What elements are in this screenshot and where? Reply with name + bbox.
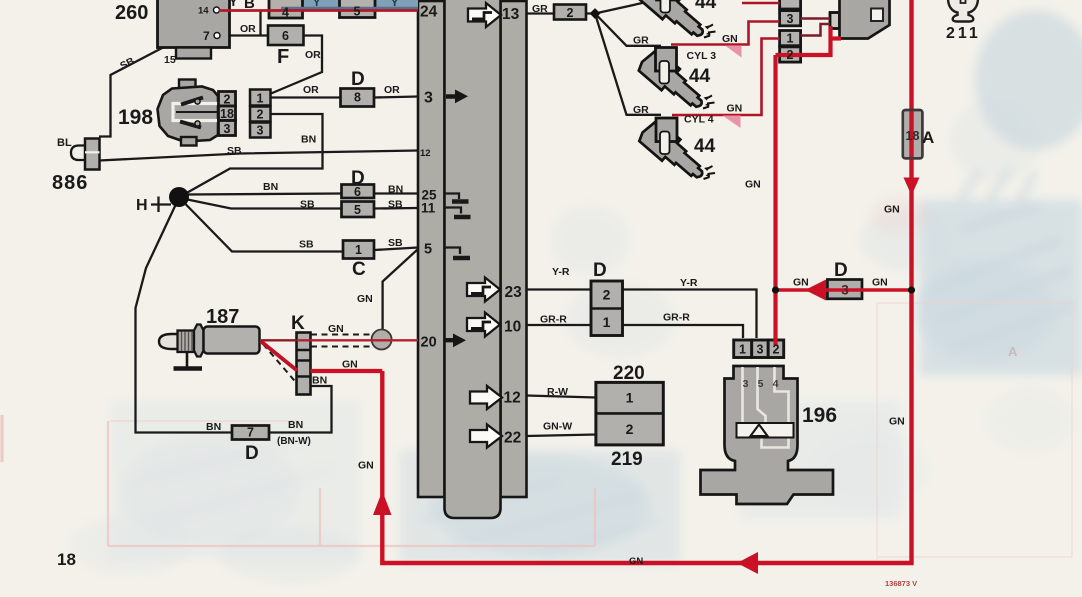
svg-text:6: 6 xyxy=(282,29,289,43)
svg-text:GN: GN xyxy=(745,179,761,191)
svg-text:(BN-W): (BN-W) xyxy=(277,436,311,447)
svg-text:6: 6 xyxy=(354,185,361,199)
svg-text:OR: OR xyxy=(305,49,321,61)
svg-text:Y: Y xyxy=(313,0,321,9)
svg-text:2: 2 xyxy=(773,343,780,357)
svg-text:3: 3 xyxy=(787,12,794,26)
svg-text:7: 7 xyxy=(247,426,254,440)
svg-text:5: 5 xyxy=(354,5,361,19)
svg-text:2: 2 xyxy=(603,287,611,303)
svg-text:GR-R: GR-R xyxy=(663,312,690,324)
svg-text:219: 219 xyxy=(611,449,643,470)
svg-text:15: 15 xyxy=(164,54,176,66)
svg-text:GR-R: GR-R xyxy=(540,314,567,326)
svg-text:18: 18 xyxy=(906,129,920,143)
svg-text:2: 2 xyxy=(257,108,264,122)
svg-text:8: 8 xyxy=(354,91,361,105)
svg-text:3: 3 xyxy=(757,343,764,357)
svg-text:GR: GR xyxy=(633,104,649,116)
svg-text:GN: GN xyxy=(357,293,373,305)
svg-text:1: 1 xyxy=(355,243,362,257)
svg-text:GN: GN xyxy=(793,277,809,289)
svg-text:1: 1 xyxy=(626,390,634,406)
svg-text:D: D xyxy=(593,260,607,281)
svg-text:886: 886 xyxy=(52,172,88,194)
svg-text:F: F xyxy=(277,46,289,68)
svg-text:GN: GN xyxy=(884,204,900,216)
svg-text:3: 3 xyxy=(257,124,264,138)
svg-text:OR: OR xyxy=(240,23,256,35)
svg-text:R-W: R-W xyxy=(547,386,568,398)
svg-text:2: 2 xyxy=(224,93,231,107)
svg-text:GR: GR xyxy=(633,35,649,47)
svg-text:BN: BN xyxy=(301,134,316,146)
svg-text:10: 10 xyxy=(504,319,521,336)
svg-text:C: C xyxy=(352,259,366,280)
svg-text:H: H xyxy=(136,197,148,214)
svg-text:Y: Y xyxy=(229,0,238,9)
svg-text:211: 211 xyxy=(946,25,981,42)
svg-text:44: 44 xyxy=(695,0,717,13)
svg-text:Y-R: Y-R xyxy=(680,277,698,289)
svg-text:BN: BN xyxy=(206,421,221,433)
svg-text:D: D xyxy=(351,69,365,90)
svg-text:196: 196 xyxy=(802,404,837,427)
svg-text:Y: Y xyxy=(391,0,399,9)
svg-text:1: 1 xyxy=(739,343,746,357)
svg-text:OR: OR xyxy=(303,84,319,96)
svg-text:5: 5 xyxy=(758,378,764,390)
svg-text:GR: GR xyxy=(532,3,548,15)
svg-text:4: 4 xyxy=(773,378,779,390)
svg-text:3: 3 xyxy=(841,283,849,298)
svg-text:20: 20 xyxy=(421,335,437,351)
svg-text:BN: BN xyxy=(388,183,403,195)
svg-text:5: 5 xyxy=(354,203,361,217)
svg-text:Y-R: Y-R xyxy=(552,266,570,278)
svg-text:220: 220 xyxy=(613,363,645,384)
svg-text:K: K xyxy=(291,313,305,334)
svg-text:A: A xyxy=(922,128,934,147)
svg-text:2: 2 xyxy=(787,48,794,62)
svg-text:BN: BN xyxy=(288,419,303,431)
svg-text:CYL 4: CYL 4 xyxy=(684,114,714,126)
svg-text:44: 44 xyxy=(689,66,711,87)
svg-text:SB: SB xyxy=(388,237,403,249)
svg-text:44: 44 xyxy=(694,136,716,157)
svg-text:11: 11 xyxy=(421,201,436,216)
svg-text:SB: SB xyxy=(299,239,314,251)
svg-text:5: 5 xyxy=(424,242,432,258)
svg-text:23: 23 xyxy=(505,284,523,301)
svg-text:18: 18 xyxy=(57,550,76,569)
svg-text:3: 3 xyxy=(224,122,231,136)
svg-text:22: 22 xyxy=(504,430,521,447)
svg-text:12: 12 xyxy=(504,390,521,407)
svg-text:12: 12 xyxy=(420,148,431,159)
svg-text:3: 3 xyxy=(743,378,749,390)
svg-text:OR: OR xyxy=(384,84,400,96)
svg-text:1: 1 xyxy=(603,314,611,330)
svg-text:4: 4 xyxy=(282,6,289,20)
svg-text:D: D xyxy=(245,443,259,464)
svg-text:GN: GN xyxy=(889,416,905,428)
svg-text:D: D xyxy=(834,260,848,281)
svg-text:7: 7 xyxy=(203,29,210,43)
svg-text:260: 260 xyxy=(115,2,148,24)
svg-text:BN: BN xyxy=(312,375,327,387)
svg-text:GN: GN xyxy=(358,460,374,472)
svg-text:1: 1 xyxy=(787,32,794,46)
svg-text:GN: GN xyxy=(328,323,344,335)
svg-text:GN-W: GN-W xyxy=(543,421,572,433)
svg-text:SB: SB xyxy=(300,198,315,210)
svg-text:SB: SB xyxy=(227,145,242,157)
svg-text:GN: GN xyxy=(629,556,643,567)
svg-text:GN: GN xyxy=(342,359,358,371)
svg-text:B: B xyxy=(244,0,255,12)
svg-text:3: 3 xyxy=(424,90,433,107)
svg-text:18: 18 xyxy=(220,107,234,121)
svg-text:24: 24 xyxy=(420,4,438,21)
svg-text:13: 13 xyxy=(502,6,520,23)
svg-text:GN: GN xyxy=(727,103,743,115)
svg-text:198: 198 xyxy=(118,106,153,129)
svg-text:14: 14 xyxy=(198,6,209,17)
svg-text:187: 187 xyxy=(206,306,239,328)
svg-text:1: 1 xyxy=(257,92,264,106)
svg-text:GN: GN xyxy=(722,33,738,45)
svg-text:A: A xyxy=(1008,344,1018,359)
svg-text:BL: BL xyxy=(57,137,72,149)
svg-text:CYL 3: CYL 3 xyxy=(687,50,717,62)
svg-text:136873 V: 136873 V xyxy=(885,579,917,588)
svg-text:GN: GN xyxy=(872,277,888,289)
svg-text:SB: SB xyxy=(388,198,403,210)
svg-text:2: 2 xyxy=(626,421,634,437)
svg-text:BN: BN xyxy=(263,181,278,193)
svg-text:2: 2 xyxy=(567,6,574,20)
